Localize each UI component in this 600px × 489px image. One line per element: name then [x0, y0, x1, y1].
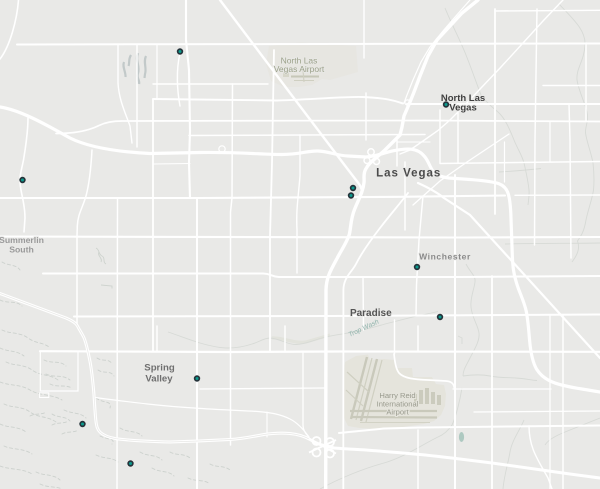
svg-text:Valley: Valley [145, 373, 173, 384]
svg-text:Airport: Airport [386, 408, 409, 417]
svg-text:Winchester: Winchester [419, 252, 471, 262]
svg-text:South: South [9, 245, 34, 255]
svg-text:Vegas Airport: Vegas Airport [274, 64, 325, 74]
svg-text:Paradise: Paradise [350, 308, 392, 319]
svg-text:Las Vegas: Las Vegas [376, 167, 441, 179]
svg-text:Vegas: Vegas [449, 103, 476, 114]
svg-text:Spring: Spring [144, 362, 175, 373]
